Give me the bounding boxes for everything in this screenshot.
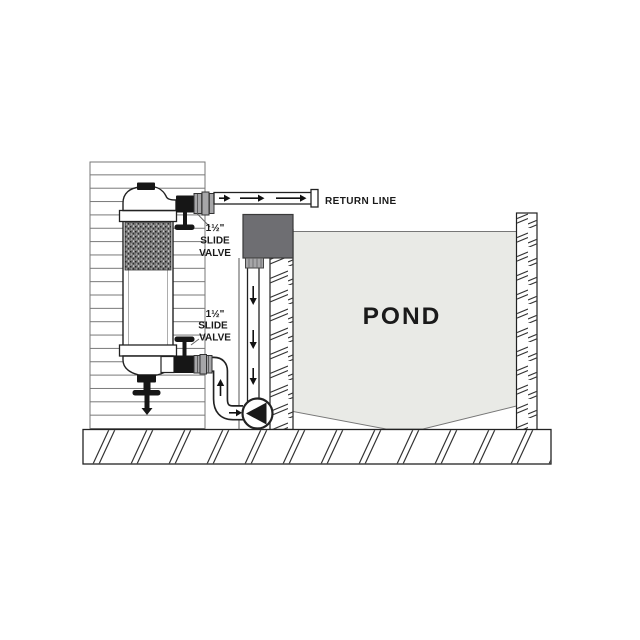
pond-wall-left xyxy=(270,230,293,430)
valve-handle xyxy=(183,342,187,356)
valve-handle-bar xyxy=(175,225,195,231)
filter-collar-top xyxy=(120,211,177,222)
svg-text:1½": 1½" xyxy=(206,223,225,234)
union-fitting-upper xyxy=(194,192,214,215)
suction-pipe xyxy=(248,268,260,402)
pond-water xyxy=(293,232,517,430)
filter-media xyxy=(125,222,171,270)
filter-bottom-cap xyxy=(137,375,156,383)
svg-text:1½": 1½" xyxy=(206,309,225,320)
valve-handle-bar xyxy=(175,337,195,343)
return-line-label: RETURN LINE xyxy=(325,196,397,207)
union-fitting-lower xyxy=(194,355,212,375)
filter-lid-cap xyxy=(137,183,155,191)
pond-label: POND xyxy=(363,303,442,330)
svg-text:SLIDE: SLIDE xyxy=(200,236,230,247)
valve-handle xyxy=(183,213,187,226)
filter-collar-bottom xyxy=(120,345,177,356)
return-line-pipe xyxy=(214,190,318,208)
svg-text:VALVE: VALVE xyxy=(199,248,231,259)
svg-text:VALVE: VALVE xyxy=(199,333,231,344)
svg-text:SLIDE: SLIDE xyxy=(198,321,228,332)
pump xyxy=(243,399,273,429)
diagram-canvas: RETURN LINE POND 1½" SLIDE VALVE 1½" SLI… xyxy=(0,0,640,640)
filter-bottom-outlet xyxy=(161,357,174,373)
pond-filter-diagram: RETURN LINE POND 1½" SLIDE VALVE 1½" SLI… xyxy=(0,0,640,640)
pipe-end-flange xyxy=(311,190,318,208)
pond-wall-right xyxy=(517,213,538,430)
pump-suction-elbow-pipe xyxy=(212,364,243,416)
ground xyxy=(83,430,551,465)
